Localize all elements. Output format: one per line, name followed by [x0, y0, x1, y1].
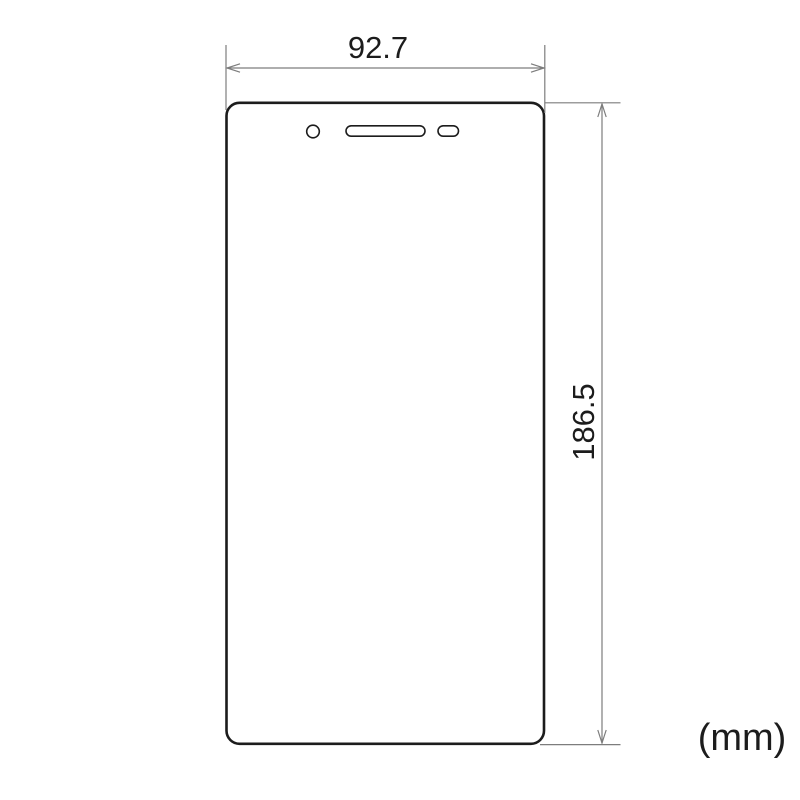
unit-label: (mm)	[698, 717, 787, 759]
height-dimension-label: 186.5	[566, 383, 601, 461]
speaker-slot-cutout	[346, 126, 425, 136]
dimension-diagram-page: 92.7 186.5 (mm)	[0, 0, 800, 800]
protector-outline	[227, 103, 545, 744]
camera-hole-cutout	[307, 125, 320, 138]
height-dimension: 186.5	[540, 103, 621, 745]
screen-protector	[227, 103, 545, 744]
width-dimension-label: 92.7	[348, 30, 408, 65]
small-slot-cutout	[438, 126, 459, 136]
dimension-diagram: 92.7 186.5 (mm)	[0, 0, 800, 800]
width-dimension: 92.7	[226, 30, 545, 113]
